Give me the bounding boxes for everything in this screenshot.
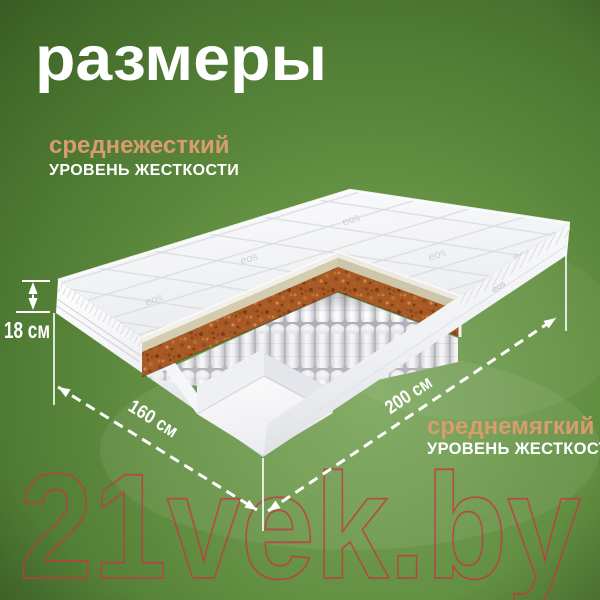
firmness-bottom-caption: УРОВЕНЬ ЖЕСТКОСТИ xyxy=(427,440,600,458)
firmness-bottom-block: среднемягкий УРОВЕНЬ ЖЕСТКОСТИ xyxy=(427,413,600,458)
firmness-top-caption: УРОВЕНЬ ЖЕСТКОСТИ xyxy=(49,162,239,179)
firmness-top-level: среднежесткий xyxy=(49,132,229,159)
mattress-dimensions-graphic: 21vek.by eos xyxy=(0,0,600,600)
firmness-bottom-level: среднемягкий xyxy=(427,413,594,440)
height-label: 18 см xyxy=(4,317,50,343)
page-title: размеры xyxy=(35,24,327,94)
watermark: 21vek.by xyxy=(19,442,581,600)
firmness-top-block: среднежесткий УРОВЕНЬ ЖЕСТКОСТИ xyxy=(49,132,239,179)
product-image: 21vek.by eos xyxy=(0,0,600,600)
